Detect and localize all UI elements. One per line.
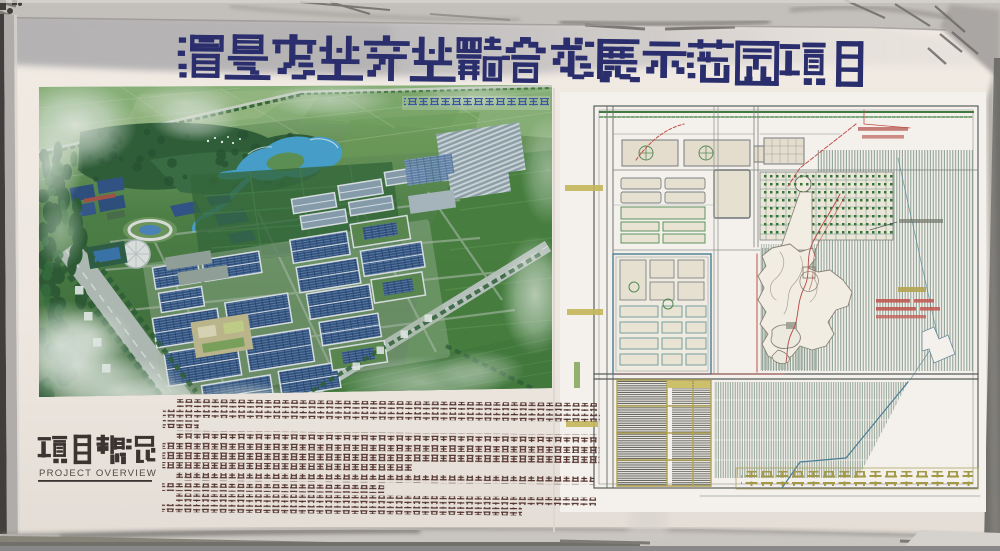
svg-text:PROJECT OVERVIEW: PROJECT OVERVIEW [39,468,157,479]
